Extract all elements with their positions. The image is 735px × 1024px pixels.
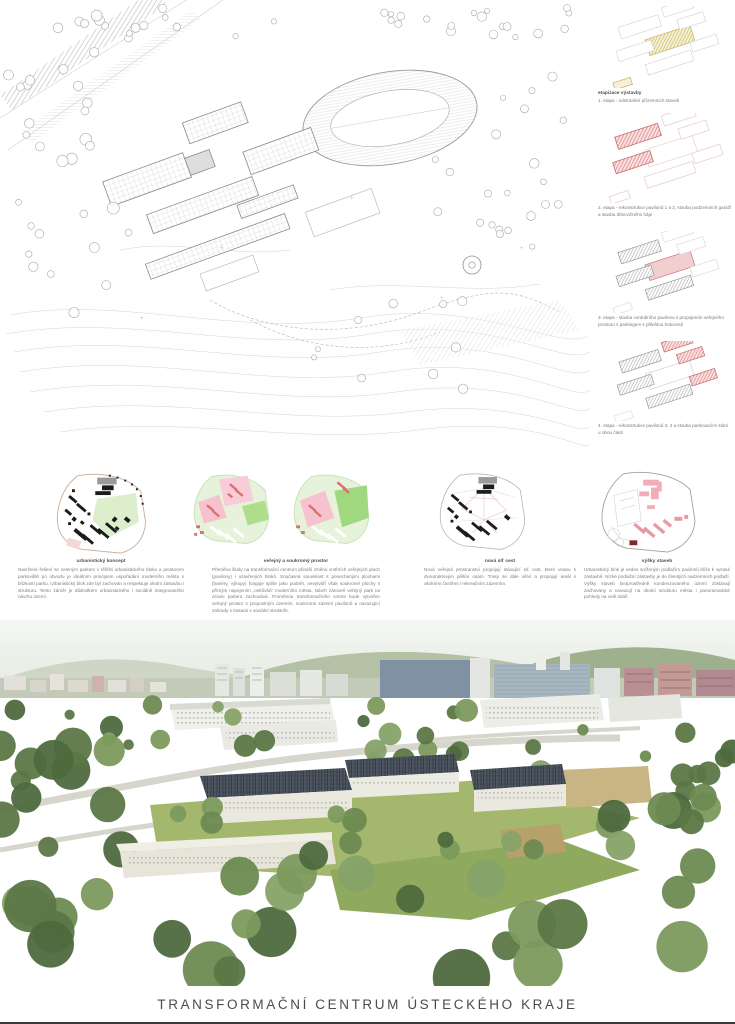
aerial-rendering: [0, 620, 735, 988]
concept-caption-heights: výšky staveb Urbanistický blok je veden …: [584, 558, 730, 601]
dark-red-building: [629, 540, 637, 545]
concept-diagram-zoning-a: [186, 468, 278, 554]
phase-4-diagram: [596, 341, 728, 421]
athletics-oval: [295, 57, 484, 178]
right-white-complex: [480, 694, 682, 728]
concept-diagram-heights: [588, 466, 712, 556]
concept-caption-public-private: veřejný a soukromý prostor Přeměna školy…: [212, 558, 380, 615]
phase-2-diagram: [596, 113, 728, 203]
construction-phases: etapizace výstavby 1. etapa - odstranění…: [596, 6, 732, 436]
phase-1-diagram: [596, 6, 728, 88]
svg-text:+: +: [140, 316, 144, 322]
presentation-board: +++ ++ etapizace výstavby 1. etapa - ods…: [0, 0, 735, 1024]
axonometric-site-drawing: +++ ++: [0, 0, 592, 460]
phase-3-caption: 3. etapa - stavba centrálního pavilonu s…: [598, 315, 732, 329]
svg-text:+: +: [350, 196, 354, 202]
phase-4-caption: 4. etapa - rekonstrukce pavilonů 3, 4 a …: [598, 423, 732, 437]
concept-diagram-zoning-b: [286, 468, 378, 554]
concept-diagram-masterplan: [28, 466, 178, 558]
water-tower: [463, 256, 481, 274]
pavilion-center: [345, 754, 459, 798]
phase-2-caption: 2. etapa - rekonstrukce pavilonů 1 a 2, …: [598, 205, 732, 219]
pavilion-right: [470, 764, 566, 812]
phase-1-caption: etapizace výstavby 1. etapa - odstranění…: [598, 90, 732, 105]
board-title: TRANSFORMAČNÍ CENTRUM ÚSTECKÉHO KRAJE: [157, 997, 577, 1012]
phases-heading: etapizace výstavby: [598, 90, 732, 97]
concept-diagram-paths: [432, 464, 536, 556]
phase-3-diagram: [596, 231, 728, 313]
slope-hatch: [400, 300, 580, 365]
title-band: TRANSFORMAČNÍ CENTRUM ÚSTECKÉHO KRAJE: [0, 986, 735, 1022]
concept-caption-paths: nová síť cest Nová veřejná prostranství …: [424, 558, 576, 588]
concept-caption-masterplan: urbanistický koncept Navržené řešení se …: [18, 558, 184, 601]
svg-text:+: +: [520, 246, 524, 252]
svg-text:+: +: [220, 246, 224, 252]
